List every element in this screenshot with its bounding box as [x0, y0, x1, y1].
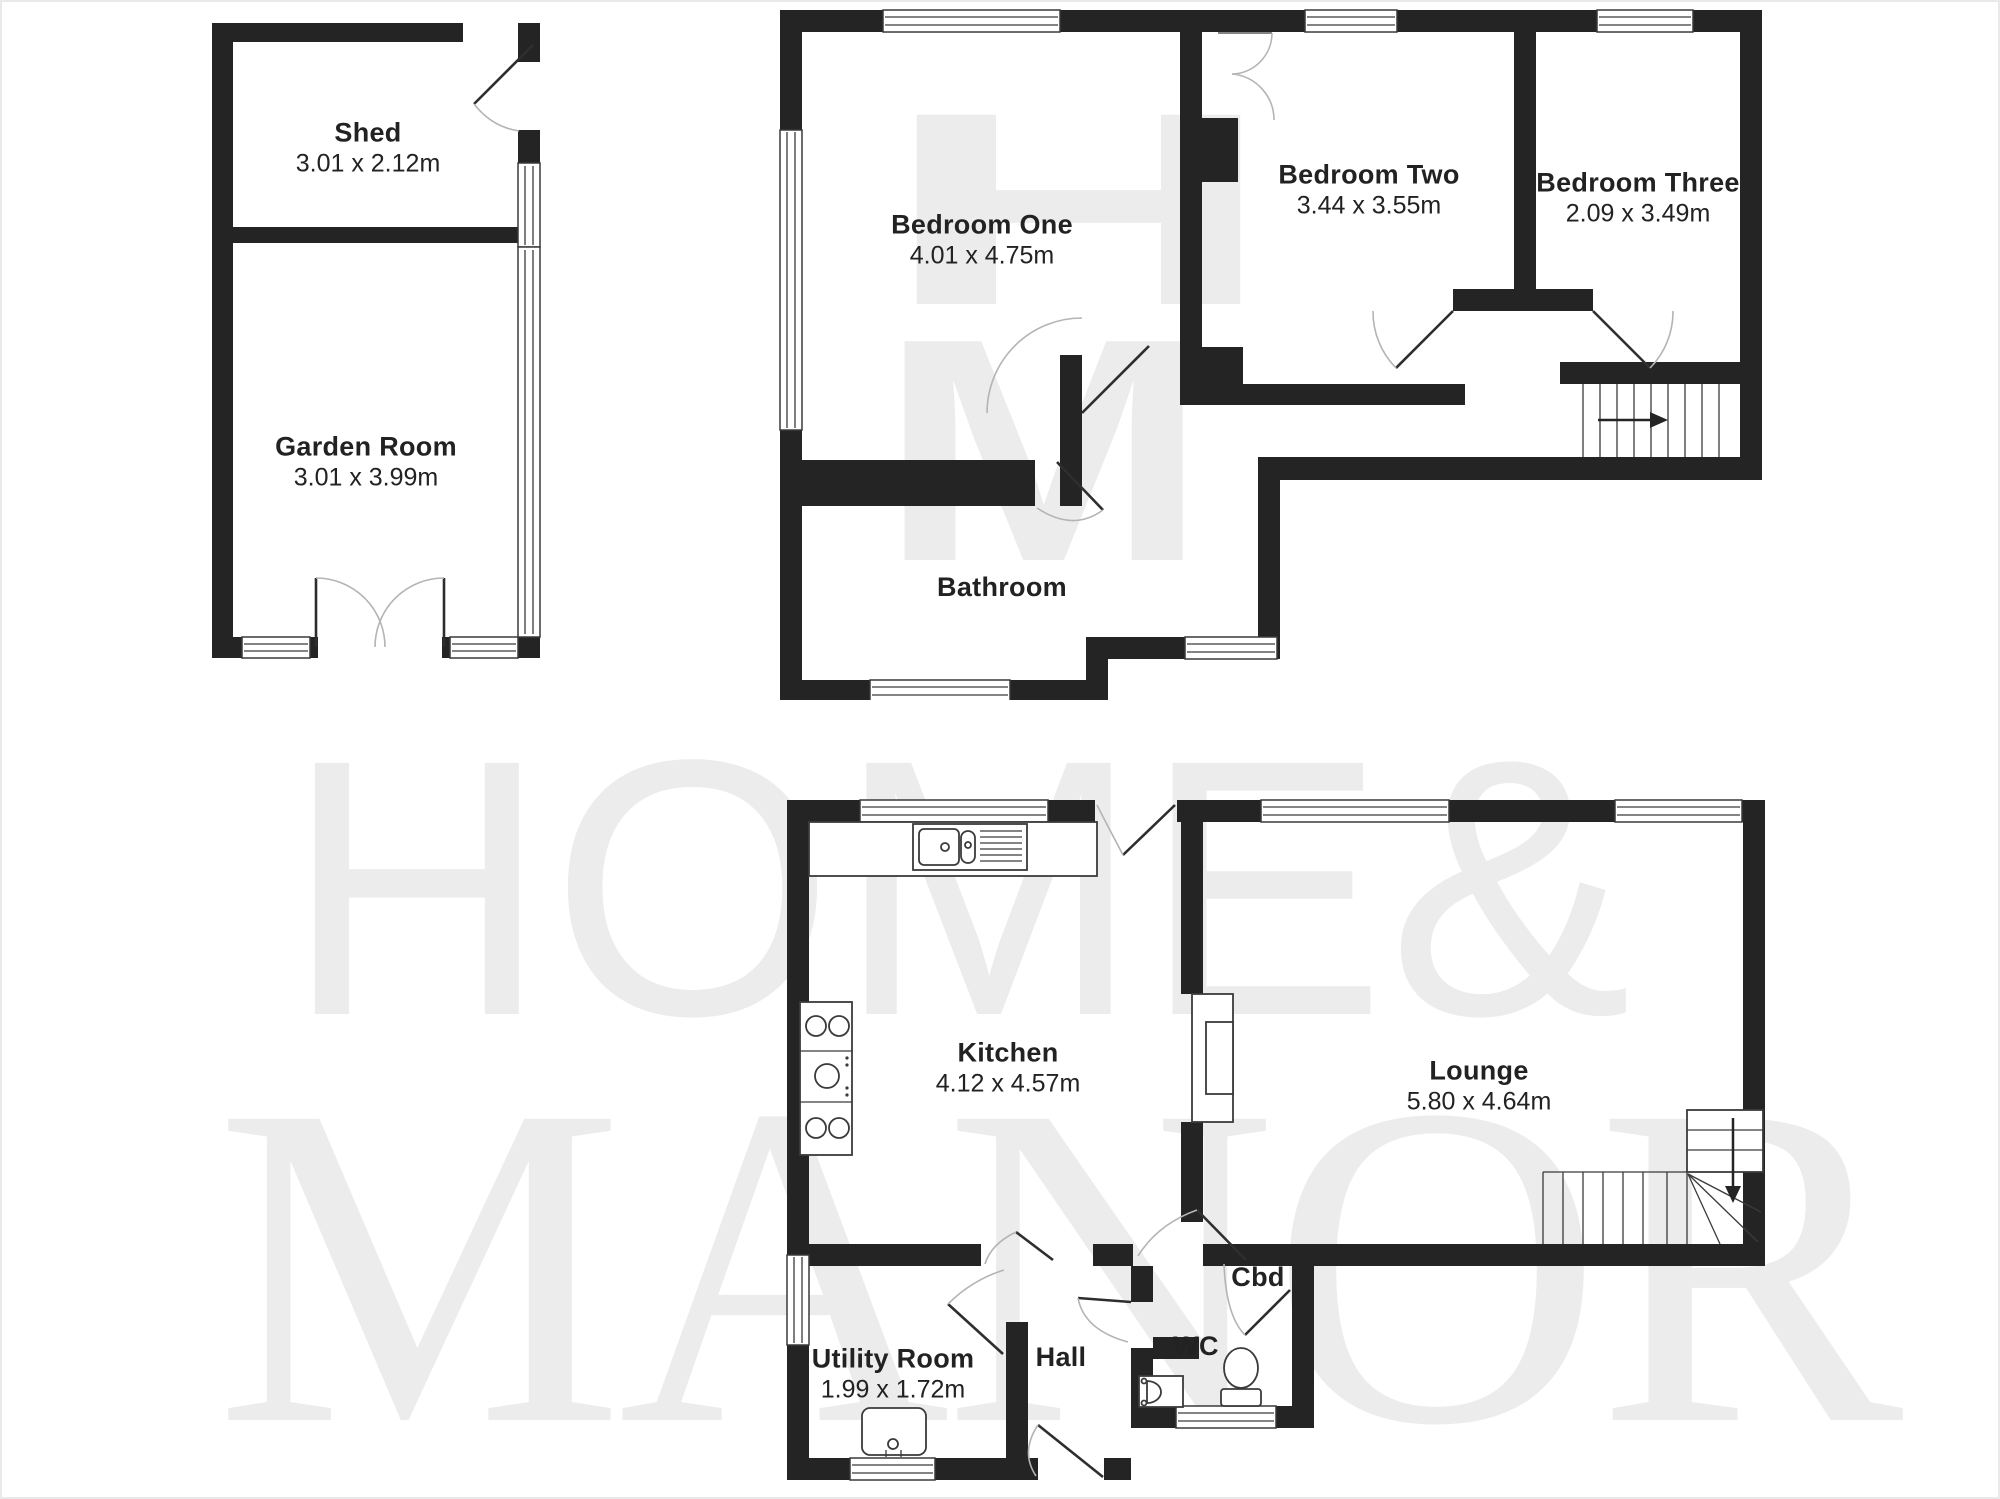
room-label-wc: WC [1173, 1331, 1219, 1363]
room-name: Bedroom One [891, 209, 1073, 241]
wc-basin-icon [1139, 1376, 1183, 1407]
room-dims: 3.01 x 2.12m [296, 149, 441, 179]
kitchen-back-door [1097, 805, 1175, 855]
room-label-bedroom-two: Bedroom Two 3.44 x 3.55m [1278, 159, 1459, 220]
chimney-breast [1192, 994, 1233, 1122]
room-name: Garden Room [275, 431, 457, 463]
wc-door [1078, 1298, 1131, 1342]
room-name: Hall [1036, 1342, 1087, 1374]
bedroom-three-door [1593, 311, 1673, 368]
room-name: Bathroom [937, 572, 1067, 604]
room-label-cbd: Cbd [1231, 1262, 1284, 1294]
room-label-garden-room: Garden Room 3.01 x 3.99m [275, 431, 457, 492]
washing-machine-icon [862, 1408, 926, 1457]
room-name: Shed [296, 117, 441, 149]
room-dims: 4.01 x 4.75m [891, 241, 1073, 271]
floorplan-canvas: H M HOME& MANOR [0, 0, 2000, 1499]
stairs-up [1583, 384, 1719, 457]
room-label-utility-room: Utility Room 1.99 x 1.72m [812, 1343, 975, 1404]
room-label-bedroom-three: Bedroom Three 2.09 x 3.49m [1536, 167, 1739, 228]
room-label-hall: Hall [1036, 1342, 1087, 1374]
room-dims: 3.44 x 3.55m [1278, 191, 1459, 221]
room-name: WC [1173, 1331, 1219, 1363]
front-door [1028, 1425, 1103, 1477]
stairs-down [1543, 1110, 1763, 1244]
outbuilding-plan [205, 5, 550, 670]
utility-room-door [948, 1270, 1004, 1354]
room-label-bathroom: Bathroom [937, 572, 1067, 604]
room-label-bedroom-one: Bedroom One 4.01 x 4.75m [891, 209, 1073, 270]
kitchen-sink-icon [913, 824, 1027, 870]
room-dims: 3.01 x 3.99m [275, 463, 457, 493]
room-dims: 4.12 x 4.57m [936, 1069, 1081, 1099]
room-name: Bedroom Three [1536, 167, 1739, 199]
room-dims: 2.09 x 3.49m [1536, 199, 1739, 229]
room-name: Kitchen [936, 1037, 1081, 1069]
room-label-lounge: Lounge 5.80 x 4.64m [1407, 1055, 1552, 1116]
bedroom-two-door [1373, 311, 1453, 368]
room-name: Cbd [1231, 1262, 1284, 1294]
room-name: Lounge [1407, 1055, 1552, 1087]
garden-room-double-doors [316, 578, 444, 647]
bedroom-two-closet-doors [1218, 33, 1274, 120]
kitchen-hall-door [985, 1232, 1053, 1264]
room-dims: 5.80 x 4.64m [1407, 1087, 1552, 1117]
hob-icon [800, 1002, 852, 1155]
room-label-kitchen: Kitchen 4.12 x 4.57m [936, 1037, 1081, 1098]
room-name: Bedroom Two [1278, 159, 1459, 191]
first-floor-plan [770, 5, 1775, 700]
first-floor-walls [780, 10, 1762, 700]
room-dims: 1.99 x 1.72m [812, 1375, 975, 1405]
toilet-icon [1221, 1348, 1261, 1406]
room-name: Utility Room [812, 1343, 975, 1375]
room-label-shed: Shed 3.01 x 2.12m [296, 117, 441, 178]
stairs-up-arrow-icon [1598, 412, 1668, 428]
